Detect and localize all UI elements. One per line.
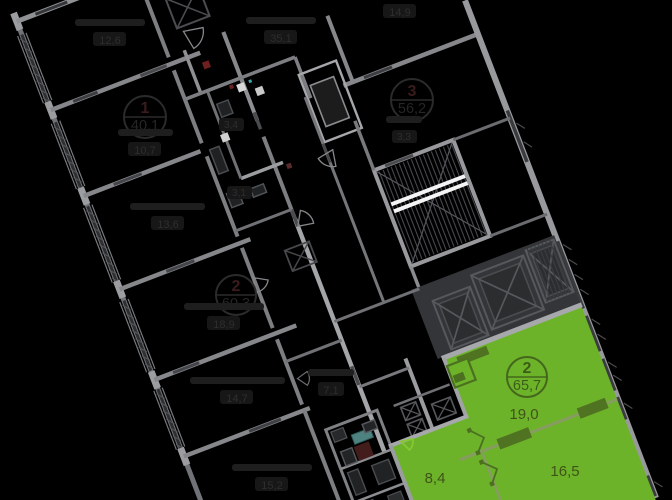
svg-text:15,2: 15,2: [261, 480, 282, 492]
svg-text:12,6: 12,6: [99, 35, 120, 47]
svg-text:10,7: 10,7: [134, 145, 155, 157]
svg-text:19,0: 19,0: [509, 406, 538, 423]
svg-text:35,1: 35,1: [270, 33, 291, 45]
svg-text:7,1: 7,1: [323, 385, 338, 397]
svg-text:3: 3: [408, 83, 417, 100]
svg-text:18,9: 18,9: [213, 319, 234, 331]
svg-text:8,4: 8,4: [425, 470, 446, 487]
svg-text:2: 2: [232, 278, 241, 295]
svg-text:16,5: 16,5: [550, 463, 579, 480]
svg-text:3,3: 3,3: [397, 132, 411, 143]
svg-text:3,4: 3,4: [224, 120, 238, 131]
svg-text:3,1: 3,1: [232, 188, 246, 199]
svg-text:14,9: 14,9: [389, 7, 410, 19]
svg-text:14,7: 14,7: [226, 393, 247, 405]
svg-text:13,6: 13,6: [157, 219, 178, 231]
svg-text:1: 1: [141, 100, 150, 117]
svg-text:56,2: 56,2: [398, 101, 426, 117]
svg-text:2: 2: [523, 360, 532, 377]
svg-text:65,7: 65,7: [513, 378, 541, 394]
